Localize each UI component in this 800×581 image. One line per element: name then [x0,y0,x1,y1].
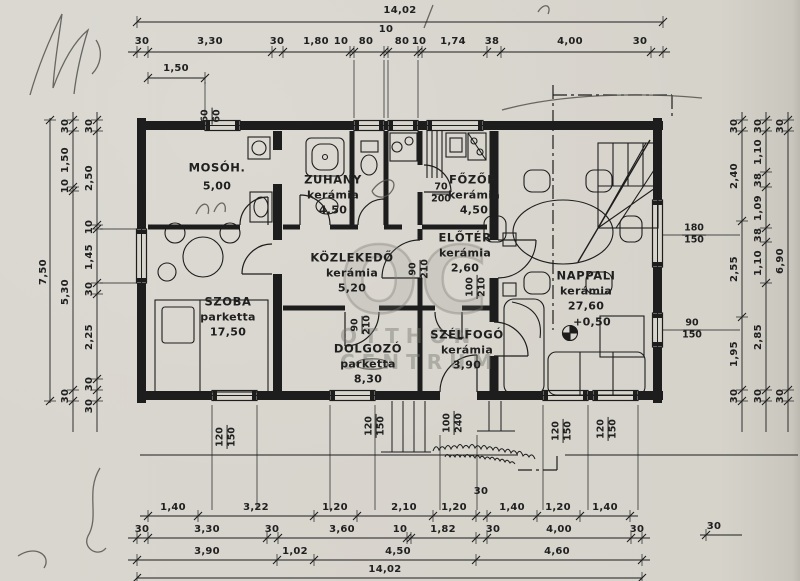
dimension-label: 1,82 [430,525,456,535]
fixture-size-label: 90210 [409,257,432,281]
dimension-label: 1,02 [282,547,308,557]
room-finish: kerámia [326,268,378,279]
dimension-label: 10 [393,525,408,535]
room-finish: kerámia [439,248,491,259]
dimension-label: 2,50 [85,165,95,191]
fixture-size-bottom: 150 [682,236,706,247]
kitchen-sink [446,133,466,157]
dimension-label: 1,40 [592,503,618,513]
toilet [361,141,378,152]
fixture-size-bottom: 210 [478,275,489,299]
dimension-label: 1,09 [754,195,764,221]
fixture-size-label: 120150 [597,417,620,441]
dimension-label: 30 [633,37,648,47]
room-name: SZOBA [204,296,251,308]
room-name: FŐZŐF. [449,174,499,186]
dimension-label: 2,55 [730,256,740,282]
dimension-label: 10 [334,37,349,47]
fixture-size-label: 100240 [443,411,466,435]
fixture-size-label: 180150 [682,224,706,247]
dimension-label: 1,10 [754,250,764,276]
dimension-label: 30 [270,37,285,47]
dimension-label: 1,50 [163,64,189,74]
dimension-label: 14,02 [368,565,401,575]
dimension-label: 30 [754,119,764,134]
fixture-size-bottom: 60 [213,107,224,124]
room-area: 4,50 [460,205,488,216]
dimension-label: 4,60 [544,547,570,557]
dimension-label: 10 [61,179,71,194]
dimension-label: 1,20 [322,503,348,513]
dimension-label: 30 [730,389,740,404]
room-name: ZUHANY [304,174,362,186]
dimension-label: 30 [730,119,740,134]
fixture-size-label: 90150 [680,319,704,342]
dimension-label: 3,30 [194,525,220,535]
room-finish: kerámia [448,190,500,201]
dimension-label: 2,85 [754,324,764,350]
dimension-label: 30 [85,282,95,297]
dimension-label: 14,02 [383,6,416,16]
dimension-label: 30 [61,389,71,404]
dimension-label: 30 [135,525,150,535]
dimension-label: 30 [61,119,71,134]
dimension-label: 7,50 [39,259,49,285]
dimension-label: 3,90 [194,547,220,557]
dimension-label: 30 [474,487,489,497]
dimension-label: 2,25 [85,324,95,350]
dimension-label: 3,30 [197,37,223,47]
dimension-label: 4,00 [546,525,572,535]
room-finish: parketta [340,359,396,370]
room-name: MOSÓH. [189,162,246,174]
dimension-label: 30 [754,389,764,404]
dimension-label: 30 [630,525,645,535]
dimension-label: 1,95 [730,341,740,367]
dimension-label: 30 [776,389,786,404]
dimension-label: 30 [135,37,150,47]
dimension-label: 30 [265,525,280,535]
fixture-size-label: 120150 [216,425,239,449]
dimension-label: 1,74 [440,37,466,47]
room-name: SZÉLFOGÓ [430,329,503,341]
dimension-label: 38 [754,173,764,188]
dimension-label: 38 [754,228,764,243]
room-finish: parketta [200,312,256,323]
dimension-label: 80 [359,37,374,47]
dimension-label: 5,30 [61,279,71,305]
dimension-label: 30 [707,522,722,532]
sofa [548,352,645,395]
dimension-label: 1,50 [61,147,71,173]
room-area: 4,50 [319,205,347,216]
dimension-label: 10 [379,25,394,35]
dimension-label: 3,22 [243,503,269,513]
room-finish: kerámia [560,286,612,297]
level-mark-label: +0,50 [573,317,611,328]
room-area: 5,00 [203,181,231,192]
room-area: 2,60 [451,263,479,274]
room-area: 5,20 [338,283,366,294]
dimension-label: 1,10 [754,139,764,165]
fixture-size-bottom: 150 [680,331,704,342]
fixture-size-bottom: 150 [609,417,620,441]
dimension-label: 1,40 [499,503,525,513]
kitchen-counter [427,131,442,178]
fixture-size-bottom: 200 [429,195,453,206]
room-finish: kerámia [307,190,359,201]
room-area: 17,50 [210,327,246,338]
dimension-label: 6,90 [776,248,786,274]
dimension-label: 1,20 [441,503,467,513]
fixture-size-bottom: 210 [363,313,374,337]
dimension-label: 4,00 [557,37,583,47]
room-area: 27,60 [568,301,604,312]
dimension-label: 30 [85,119,95,134]
washing-machine [248,137,270,159]
fixture-size-label: 120150 [552,419,575,443]
dimension-label: 3,60 [329,525,355,535]
dimension-label: 2,10 [391,503,417,513]
dimension-label: 38 [485,37,500,47]
dimension-label: 80 [395,37,410,47]
dimension-label: 10 [412,37,427,47]
dimension-label: 2,40 [730,163,740,189]
fixture-size-bottom: 240 [455,411,466,435]
fixture-size-bottom: 150 [377,414,388,438]
scanned-floorplan-page: OC OTTHON CENTRUM 14,02303,30301,8010801… [0,0,800,581]
room-name: NAPPALI [556,270,615,282]
room-finish: kerámia [441,345,493,356]
dimension-label: 30 [85,377,95,392]
dimension-label: 1,40 [160,503,186,513]
dimension-label: 1,45 [85,244,95,270]
fixture-size-bottom: 150 [564,419,575,443]
fixture-size-label: 120150 [365,414,388,438]
dimension-label: 30 [776,119,786,134]
room-area: 8,30 [354,374,382,385]
dimension-label: 30 [85,399,95,414]
room-area: 3,90 [453,360,481,371]
fixture-size-label: 90210 [351,313,374,337]
fixture-size-label: 6060 [201,107,224,124]
dimension-label: 4,50 [385,547,411,557]
room-name: ELŐTÉR [438,232,491,244]
dimension-label: 10 [85,220,95,235]
round-table [183,237,223,277]
dimension-label: 1,80 [303,37,329,47]
dimension-label: 1,20 [545,503,571,513]
fixture-size-bottom: 150 [228,425,239,449]
floorplan-drawing [0,0,800,581]
room-name: DOLGOZÓ [334,343,402,355]
vegetation-hatch [433,445,535,465]
room-name: KÖZLEKEDŐ [310,252,393,264]
dimension-label: 30 [486,525,501,535]
fixture-size-label: 100210 [466,275,489,299]
fixture-size-label: 70200 [429,183,453,206]
fixture-size-bottom: 210 [421,257,432,281]
